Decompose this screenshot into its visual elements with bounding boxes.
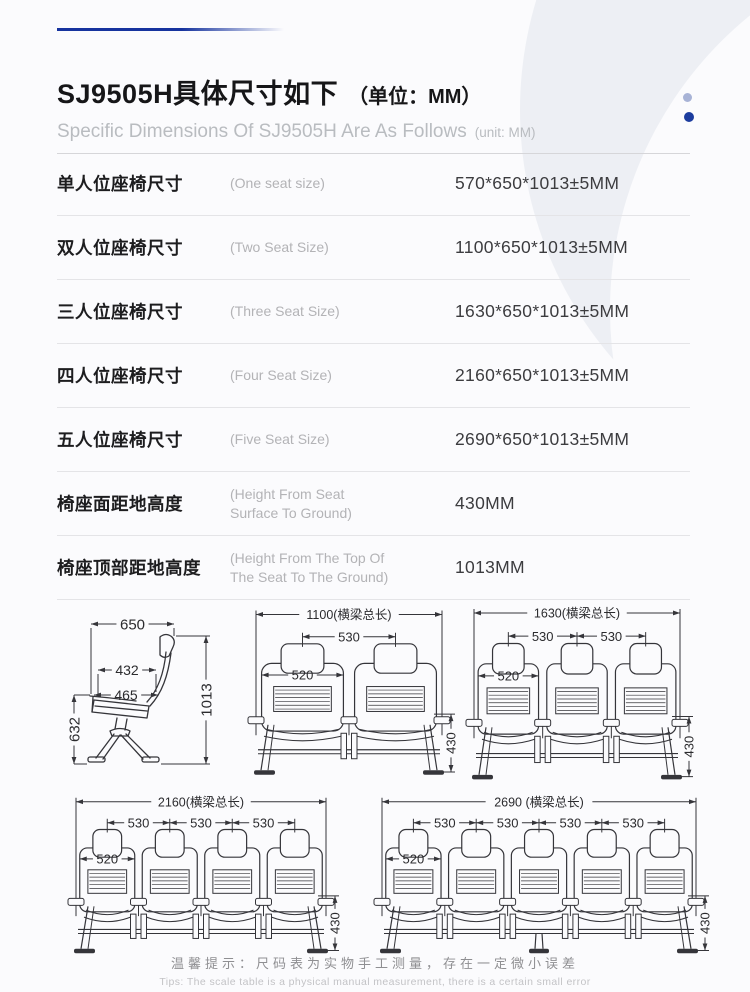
svg-text:2160(横梁总长): 2160(横梁总长): [158, 794, 244, 809]
table-row: 单人位座椅尺寸 (One seat size) 570*650*1013±5MM: [57, 152, 690, 216]
svg-text:430: 430: [328, 912, 343, 934]
diagram-two-seat-front-view: 1100(横梁总长)530520430: [246, 602, 458, 780]
spec-label-cn: 三人位座椅尺寸: [57, 299, 230, 324]
svg-text:430: 430: [698, 912, 713, 934]
spec-value: 1013MM: [455, 557, 525, 578]
footer-note: 温馨提示：尺码表为实物手工测量，存在一定微小误差 Tips: The scale…: [0, 953, 750, 988]
svg-text:520: 520: [497, 669, 519, 684]
page-subtitle: Specific Dimensions Of SJ9505H Are As Fo…: [57, 121, 467, 143]
table-row: 双人位座椅尺寸 (Two Seat Size) 1100*650*1013±5M…: [57, 216, 690, 280]
spec-value: 2690*650*1013±5MM: [455, 429, 629, 450]
table-row: 三人位座椅尺寸 (Three Seat Size) 1630*650*1013±…: [57, 280, 690, 344]
svg-text:530: 530: [532, 629, 554, 644]
spec-label-cn: 单人位座椅尺寸: [57, 171, 230, 196]
spec-label-en: (Height From The Top Of The Seat To The …: [230, 549, 455, 585]
page-title: SJ9505H具体尺寸如下: [57, 72, 338, 111]
spec-label-cn: 四人位座椅尺寸: [57, 363, 230, 388]
table-row: 四人位座椅尺寸 (Four Seat Size) 2160*650*1013±5…: [57, 344, 690, 408]
spec-value: 1630*650*1013±5MM: [455, 301, 629, 322]
diagram-four-seat-front-view: 2160(横梁总长)530530530520430: [66, 790, 342, 958]
footer-note-cn: 温馨提示：尺码表为实物手工测量，存在一定微小误差: [0, 953, 750, 972]
spec-value: 2160*650*1013±5MM: [455, 365, 629, 386]
svg-text:1100(横梁总长): 1100(横梁总长): [306, 607, 391, 622]
svg-text:430: 430: [682, 736, 697, 758]
svg-text:530: 530: [434, 815, 456, 830]
svg-text:430: 430: [444, 732, 459, 754]
diagram-single-seat-side-view: 6504324651013632: [58, 598, 238, 782]
svg-text:2690 (横梁总长): 2690 (横梁总长): [494, 794, 584, 809]
spec-label-en: (Four Seat Size): [230, 366, 455, 384]
page-subtitle-unit: (unit: MM): [475, 125, 536, 140]
svg-text:530: 530: [497, 815, 519, 830]
spec-label-en: (Two Seat Size): [230, 238, 455, 256]
table-row: 椅座面距地高度 (Height From Seat Surface To Gro…: [57, 472, 690, 536]
accent-gradient-line: [57, 28, 284, 31]
footer-note-en: Tips: The scale table is a physical manu…: [0, 976, 750, 988]
svg-text:1630(横梁总长): 1630(横梁总长): [534, 605, 620, 620]
svg-text:530: 530: [190, 815, 212, 830]
spec-label-en: (Height From Seat Surface To Ground): [230, 485, 455, 521]
svg-text:530: 530: [622, 815, 644, 830]
svg-text:520: 520: [96, 852, 118, 867]
spec-label-en: (Five Seat Size): [230, 430, 455, 448]
spec-label-en: (One seat size): [230, 174, 455, 192]
svg-text:520: 520: [292, 668, 314, 683]
spec-value: 570*650*1013±5MM: [455, 173, 619, 194]
page-title-unit: （单位：MM）: [348, 80, 481, 109]
svg-text:530: 530: [128, 815, 150, 830]
section-header: SJ9505H具体尺寸如下 （单位：MM） Specific Dimension…: [57, 72, 690, 154]
svg-text:465: 465: [114, 687, 138, 703]
svg-text:530: 530: [338, 629, 360, 644]
spec-label-cn: 五人位座椅尺寸: [57, 427, 230, 452]
svg-text:530: 530: [253, 815, 275, 830]
dimension-spec-table: 单人位座椅尺寸 (One seat size) 570*650*1013±5MM…: [57, 152, 690, 600]
spec-label-en: (Three Seat Size): [230, 302, 455, 320]
spec-label-cn: 双人位座椅尺寸: [57, 235, 230, 260]
spec-label-cn: 椅座顶部距地高度: [57, 555, 230, 580]
svg-text:432: 432: [115, 662, 139, 678]
spec-label-cn: 椅座面距地高度: [57, 491, 230, 516]
svg-text:1013: 1013: [198, 683, 215, 716]
table-row: 椅座顶部距地高度 (Height From The Top Of The Sea…: [57, 536, 690, 600]
spec-value: 1100*650*1013±5MM: [455, 237, 628, 258]
diagram-five-seat-front-view: 2690 (横梁总长)530530530530520430: [372, 790, 712, 958]
svg-text:520: 520: [403, 852, 425, 867]
svg-text:650: 650: [120, 616, 145, 633]
spec-value: 430MM: [455, 493, 515, 514]
svg-text:632: 632: [66, 717, 83, 742]
diagram-three-seat-front-view: 1630(横梁总长)530530520430: [464, 600, 696, 785]
table-row: 五人位座椅尺寸 (Five Seat Size) 2690*650*1013±5…: [57, 408, 690, 472]
svg-text:530: 530: [600, 629, 622, 644]
svg-text:530: 530: [560, 815, 582, 830]
